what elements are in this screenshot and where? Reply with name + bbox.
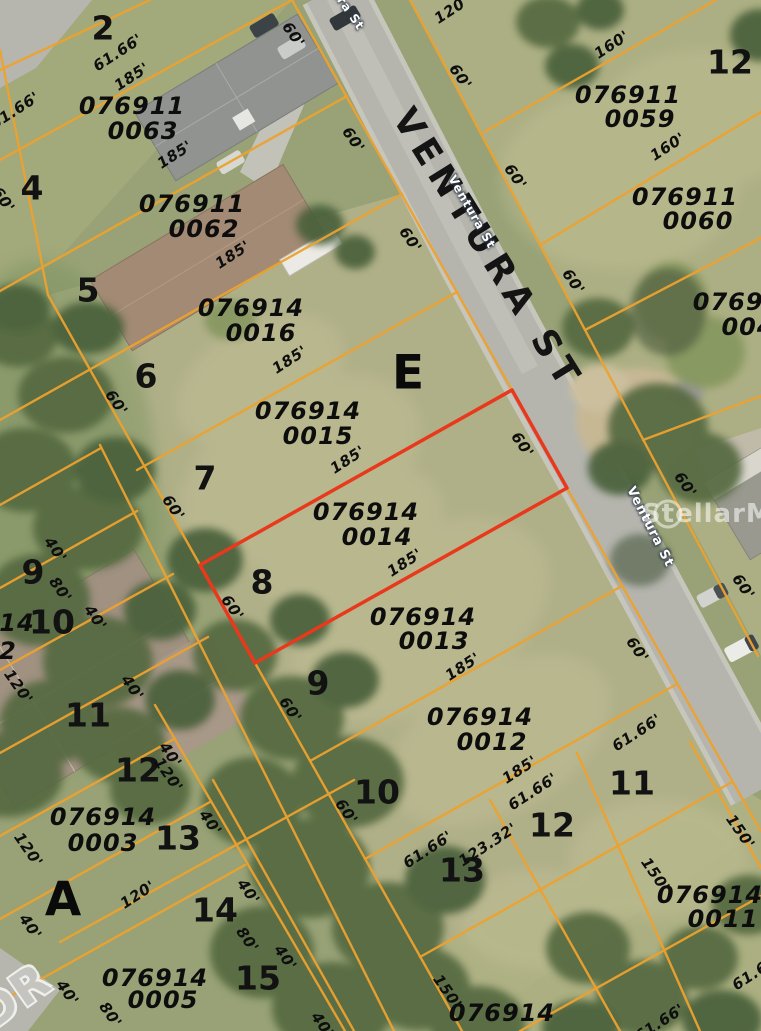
parcel-id-076911-0062: 0062 — [169, 217, 240, 241]
dimension-label: 120' — [118, 878, 158, 911]
dimension-label: 150' — [638, 855, 672, 895]
dimension-label: 60' — [729, 572, 757, 603]
lot-number-6: 6 — [135, 360, 158, 393]
parcel-id-076914-0003: 0003 — [68, 831, 139, 855]
lot-number-12-east: 12 — [529, 809, 575, 842]
parcel-id-076914-0003: 076914 — [50, 805, 156, 829]
lot-number-7: 7 — [194, 462, 217, 495]
lot-number-12-northeast: 12 — [707, 46, 753, 79]
lot-number-9: 9 — [307, 667, 330, 700]
block-letter-a: A — [45, 877, 81, 924]
dimension-label: 40' — [308, 1010, 336, 1031]
parcel-id-076914-0012: 0012 — [457, 730, 528, 754]
dimension-label: 61.66' — [633, 1002, 687, 1031]
parcel-id-partial-right: 07691 — [693, 290, 761, 314]
lot-number-9-west: 9 — [22, 556, 45, 589]
parcel-id-076914-0013: 0013 — [399, 629, 470, 653]
dimension-label: 60' — [0, 185, 17, 216]
lot-number-11-east: 11 — [609, 767, 655, 800]
map-labels-layer: 0769110063076911006207691400160769140015… — [0, 0, 761, 1031]
dimension-label: 60' — [102, 388, 130, 419]
dimension-label: 40' — [234, 877, 262, 908]
dimension-label: 40' — [41, 535, 69, 566]
parcel-id-076911-0063: 0063 — [108, 119, 179, 143]
dimension-label: 40' — [16, 912, 44, 943]
aerial-parcel-map: 0769110063076911006207691400160769140015… — [0, 0, 761, 1031]
dimension-label: 185' — [112, 60, 152, 93]
lot-number-11-west: 11 — [65, 699, 111, 732]
dimension-label: 80' — [46, 575, 74, 606]
dimension-label: 80' — [96, 1000, 124, 1031]
block-letter-e: E — [392, 350, 424, 397]
dimension-label: 80' — [233, 925, 261, 956]
dimension-label: 120' — [432, 0, 472, 27]
dimension-label: 185' — [443, 650, 483, 683]
dimension-label: 60' — [559, 267, 587, 298]
parcel-id-partial-right: 004 — [721, 315, 761, 339]
dimension-label: 61.66' — [610, 712, 664, 755]
dimension-label: 120' — [1, 667, 35, 707]
parcel-id-076914-0016: 0016 — [226, 321, 297, 345]
parcel-id-076914-0005: 0005 — [128, 988, 199, 1012]
dimension-label: 150' — [723, 812, 757, 852]
dimension-label: 60' — [623, 635, 651, 666]
lot-number-10-west: 10 — [29, 606, 75, 639]
parcel-id-partial-bottom: 076914 — [449, 1001, 555, 1025]
parcel-id-076914-0014: 0014 — [342, 525, 413, 549]
watermark-stellar-mls: StellarMLS — [642, 501, 761, 527]
parcel-id-076914-0012: 076914 — [427, 705, 533, 729]
street-name-small: Ventura St — [310, 0, 367, 32]
lot-number-8: 8 — [251, 566, 274, 599]
road-name-partial-dr: DR — [0, 955, 59, 1031]
parcel-id-076911-0063: 076911 — [79, 94, 185, 118]
parcel-id-076914-0013: 076914 — [370, 605, 476, 629]
dimension-label: 40' — [118, 673, 146, 704]
dimension-label: 160' — [648, 130, 688, 163]
lot-number-2: 2 — [92, 12, 115, 45]
lot-number-14-west: 14 — [192, 894, 238, 927]
parcel-id-076914-0016: 076914 — [198, 296, 304, 320]
dimension-label: 185' — [213, 238, 253, 271]
lot-number-15-west: 15 — [235, 962, 281, 995]
lot-number-13-west: 13 — [155, 822, 201, 855]
parcel-id-076914-0015: 0015 — [283, 424, 354, 448]
parcel-id-076914-0011: 0011 — [688, 907, 759, 931]
dimension-label: 40' — [81, 603, 109, 634]
parcel-id-076914-0011: 076914 — [657, 883, 761, 907]
dimension-label: 60' — [159, 493, 187, 524]
dimension-label: 60' — [339, 125, 367, 156]
dimension-label: 61.66' — [0, 90, 42, 133]
parcel-id-partial-left: 2 — [0, 639, 17, 663]
dimension-label: 61.66' — [730, 951, 761, 994]
parcel-id-076911-0059: 076911 — [575, 83, 681, 107]
dimension-label: 123.32' — [456, 821, 520, 870]
lot-number-10: 10 — [354, 776, 400, 809]
dimension-label: 185' — [270, 343, 310, 376]
parcel-id-076911-0059: 0059 — [605, 107, 676, 131]
dimension-label: 60' — [276, 695, 304, 726]
dimension-label: 150' — [430, 972, 464, 1012]
dimension-label: 60' — [508, 430, 536, 461]
parcel-id-076914-0015: 076914 — [255, 399, 361, 423]
parcel-id-076914-0014: 076914 — [313, 500, 419, 524]
dimension-label: 60' — [279, 20, 307, 51]
parcel-id-076911-0060: 0060 — [663, 209, 734, 233]
dimension-label: 60' — [218, 593, 246, 624]
dimension-label: 60' — [671, 470, 699, 501]
parcel-id-076911-0062: 076911 — [139, 192, 245, 216]
dimension-label: 60' — [396, 225, 424, 256]
dimension-label: 160' — [592, 28, 632, 61]
dimension-label: 60' — [446, 62, 474, 93]
dimension-label: 185' — [385, 546, 425, 579]
parcel-id-076911-0060: 076911 — [632, 185, 738, 209]
lot-number-4: 4 — [21, 172, 44, 205]
dimension-label: 120' — [11, 830, 45, 870]
dimension-label: 60' — [501, 162, 529, 193]
lot-number-5: 5 — [77, 274, 100, 307]
